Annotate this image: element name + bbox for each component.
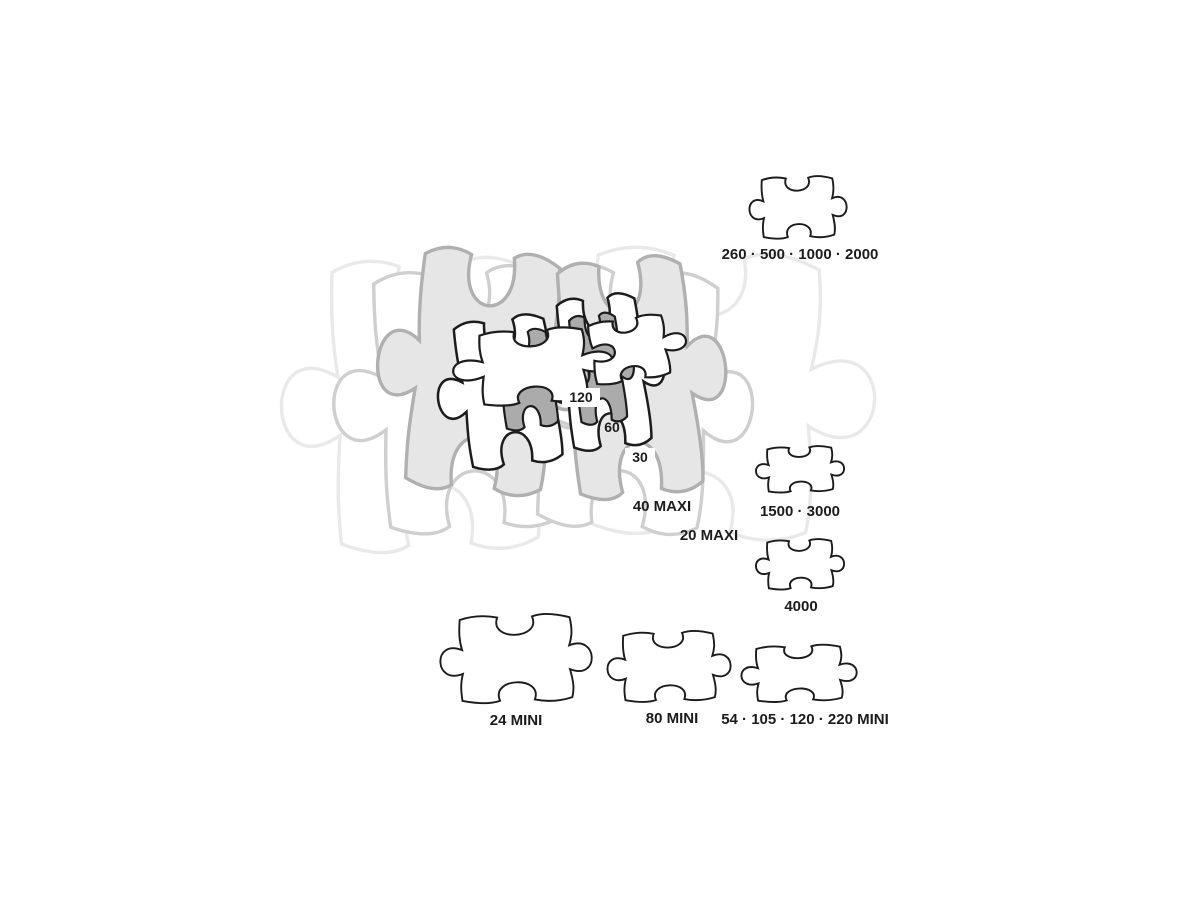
label-40-maxi: 40 MAXI [633, 498, 691, 515]
puzzle-size-chart-page: 120 60 30 40 MAXI 20 MAXI 260 · 500 · 10… [0, 0, 1200, 900]
label-1500-3000: 1500 · 3000 [760, 503, 840, 520]
label-30: 30 [632, 449, 648, 465]
label-120: 120 [569, 389, 593, 405]
label-54-105-120-220-mini: 54 · 105 · 120 · 220 MINI [721, 711, 889, 728]
label-80-mini: 80 MINI [646, 710, 699, 727]
piece-4000 [755, 538, 845, 590]
piece-260-500-1000-2000 [748, 175, 847, 240]
piece-80-mini [606, 630, 732, 704]
label-20-maxi: 20 MAXI [680, 527, 738, 544]
label-60: 60 [604, 419, 620, 435]
label-260-500-1000-2000: 260 · 500 · 1000 · 2000 [722, 246, 879, 263]
piece-24-mini [439, 612, 593, 704]
puzzle-size-chart: 120 60 30 40 MAXI 20 MAXI 260 · 500 · 10… [0, 0, 1200, 900]
piece-54-105-120-220-mini [740, 644, 857, 704]
label-24-mini: 24 MINI [490, 712, 543, 729]
label-4000: 4000 [784, 598, 817, 615]
